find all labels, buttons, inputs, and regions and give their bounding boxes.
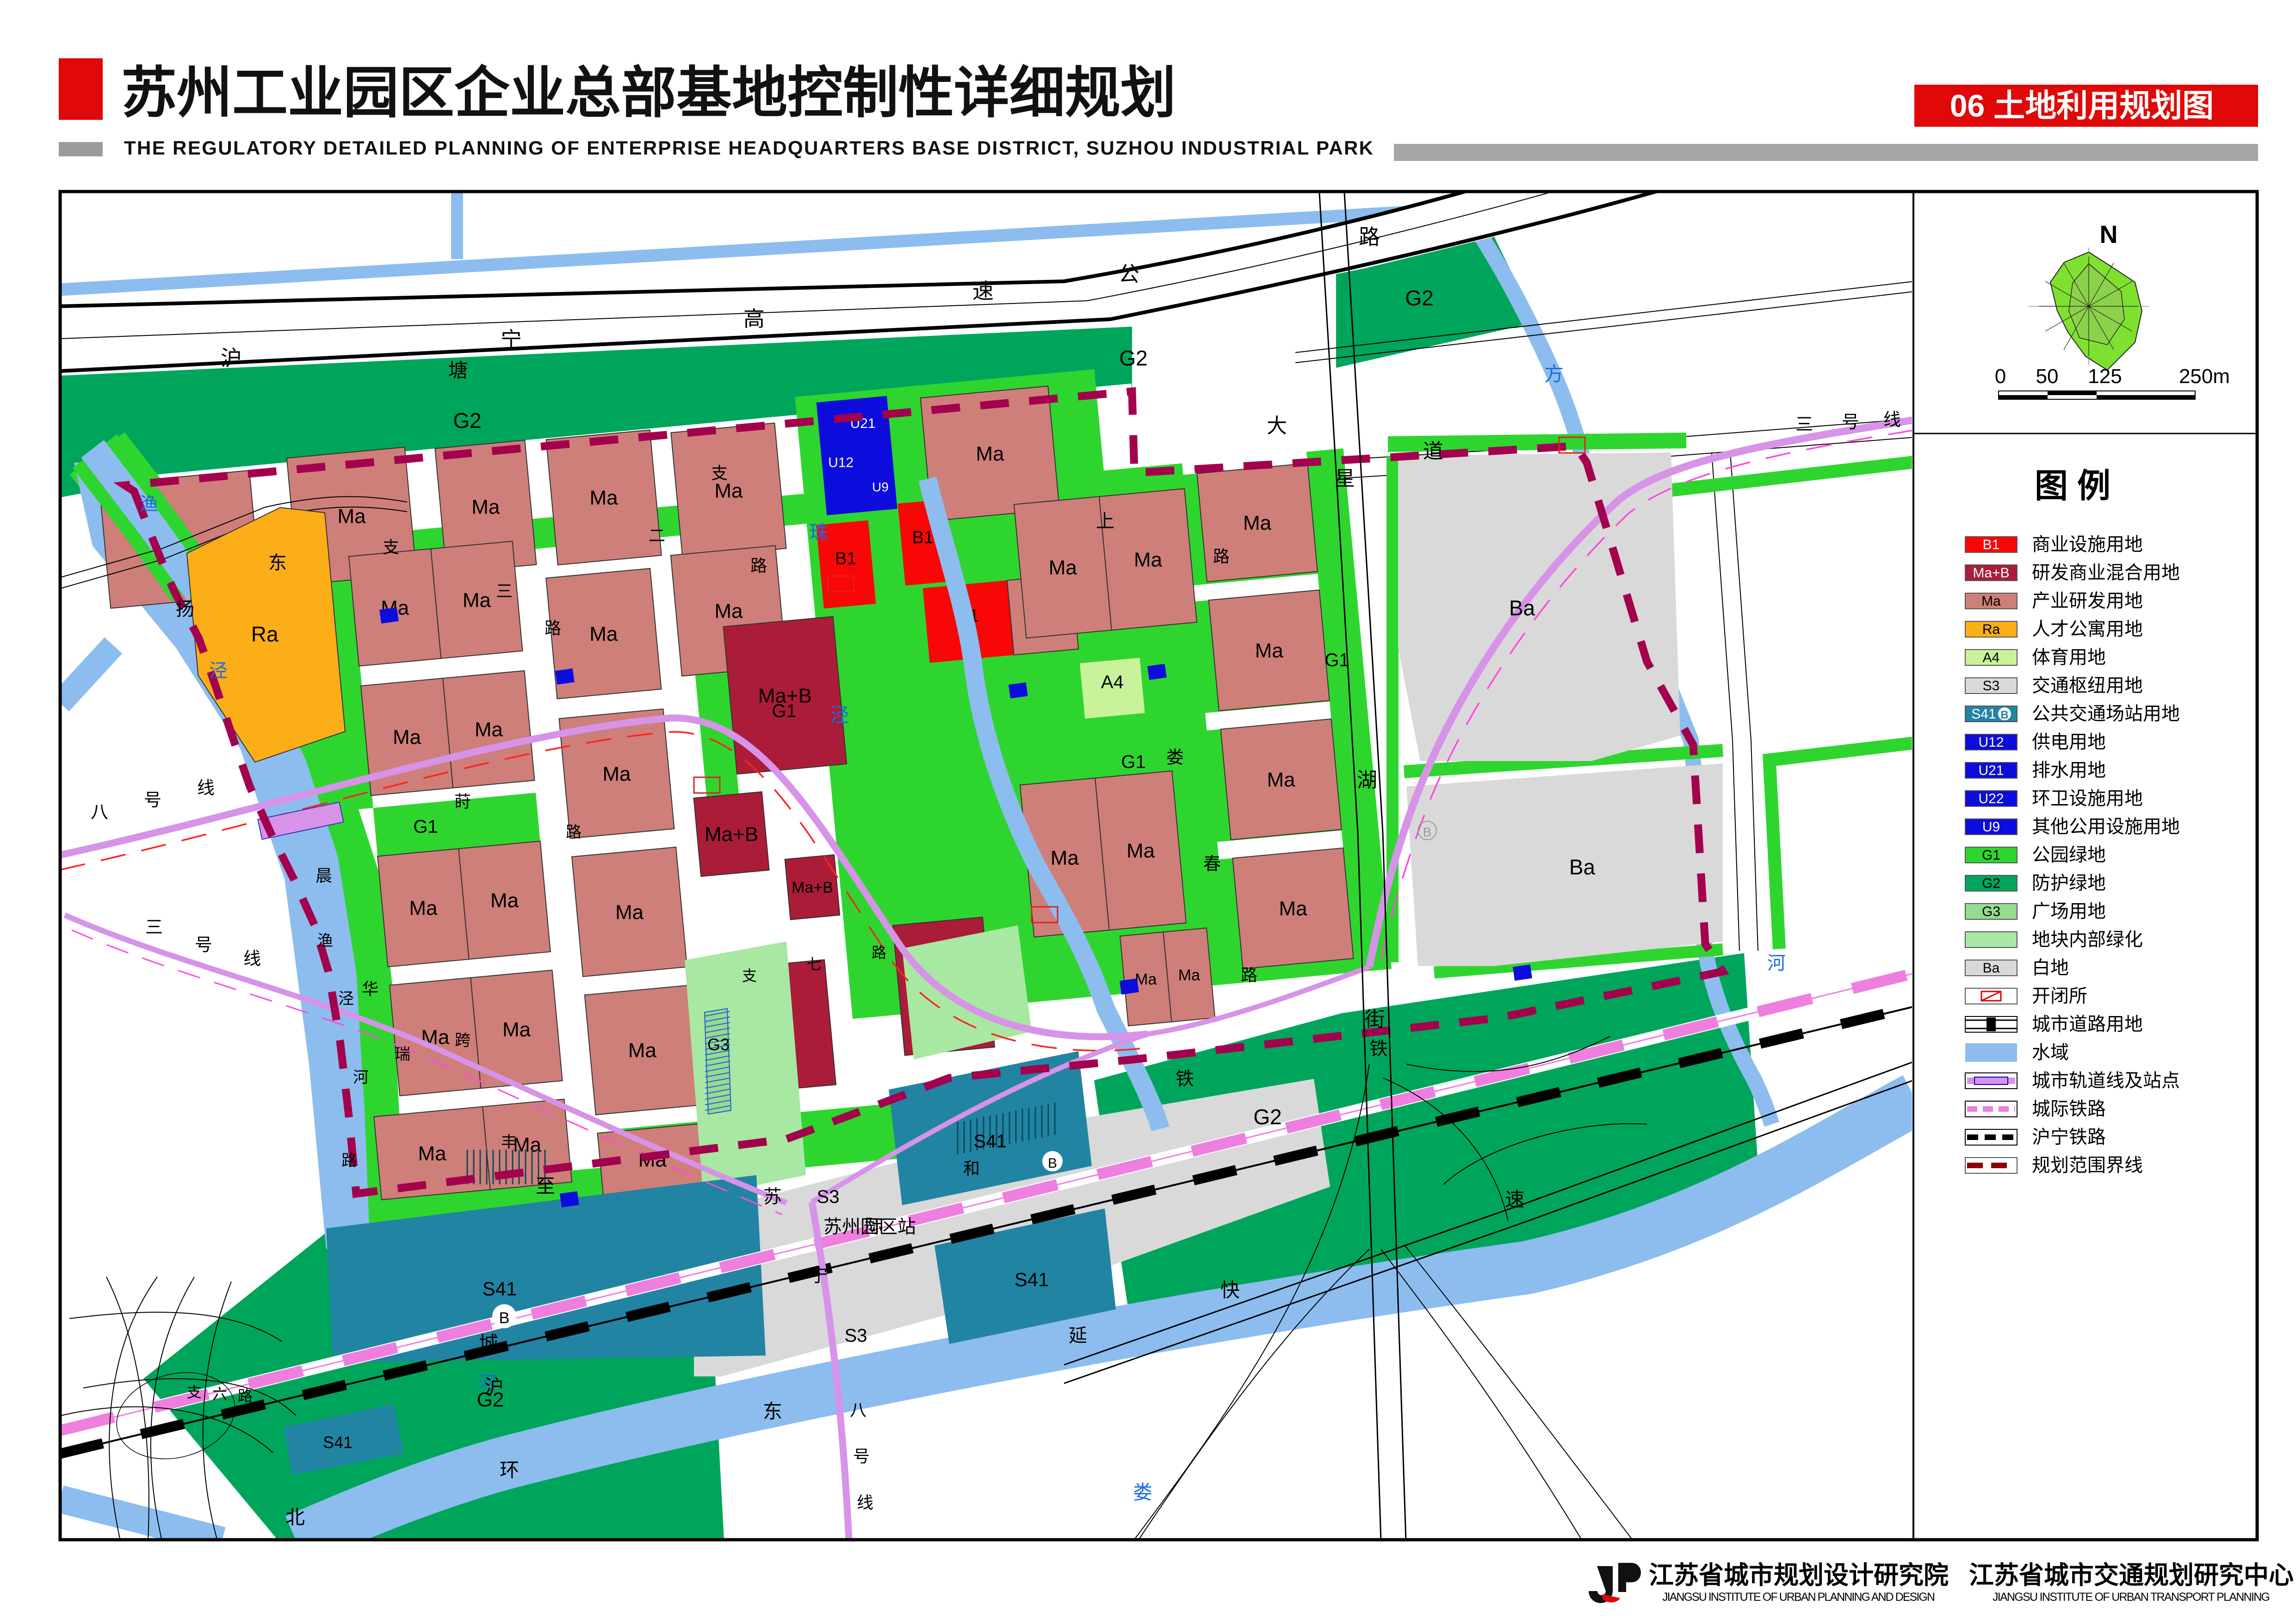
svg-text:G3: G3 — [1982, 904, 2000, 919]
svg-text:交通枢纽用地: 交通枢纽用地 — [2032, 675, 2143, 696]
svg-text:七: 七 — [807, 956, 822, 973]
svg-text:渔: 渔 — [317, 932, 333, 950]
svg-text:线: 线 — [1883, 410, 1901, 430]
svg-text:华: 华 — [362, 979, 378, 998]
svg-text:三: 三 — [145, 918, 163, 937]
svg-text:速: 速 — [1505, 1189, 1524, 1210]
svg-text:S3: S3 — [845, 1326, 867, 1346]
svg-text:湖: 湖 — [1357, 769, 1377, 792]
svg-text:莳: 莳 — [454, 792, 471, 811]
svg-text:水域: 水域 — [2032, 1042, 2069, 1063]
svg-text:瑞: 瑞 — [395, 1046, 410, 1063]
svg-text:东: 东 — [763, 1400, 782, 1422]
svg-text:G2: G2 — [1982, 876, 2000, 891]
svg-text:A4: A4 — [1983, 650, 2000, 665]
svg-text:渔: 渔 — [140, 494, 158, 514]
svg-text:Ma: Ma — [1134, 549, 1163, 571]
svg-text:号: 号 — [853, 1447, 870, 1466]
svg-text:路: 路 — [1359, 225, 1380, 249]
svg-text:Ba: Ba — [1569, 855, 1596, 879]
svg-text:Ma+B: Ma+B — [1973, 565, 2009, 581]
svg-text:河: 河 — [353, 1069, 369, 1086]
svg-text:Ma: Ma — [1255, 639, 1284, 662]
svg-text:街: 街 — [1365, 1008, 1385, 1031]
svg-text:125: 125 — [2088, 365, 2122, 388]
svg-text:娄: 娄 — [1166, 748, 1184, 768]
svg-text:S3: S3 — [817, 1187, 840, 1207]
svg-text:B: B — [1048, 1156, 1057, 1171]
svg-text:三: 三 — [496, 582, 513, 601]
svg-text:大: 大 — [1267, 415, 1287, 437]
svg-text:公: 公 — [1118, 262, 1139, 286]
svg-text:U21: U21 — [1978, 763, 2004, 778]
svg-text:铁: 铁 — [1369, 1039, 1388, 1059]
svg-text:S41: S41 — [323, 1433, 353, 1452]
svg-text:B: B — [499, 1309, 510, 1327]
svg-text:Ma+B: Ma+B — [792, 879, 833, 897]
svg-text:线: 线 — [243, 949, 261, 969]
svg-text:二: 二 — [649, 526, 665, 545]
svg-text:广场用地: 广场用地 — [2032, 901, 2106, 922]
svg-text:G3: G3 — [707, 1035, 730, 1054]
svg-text:江苏省城市交通规划研究中心: 江苏省城市交通规划研究中心 — [1969, 1561, 2294, 1589]
svg-text:Ma: Ma — [337, 505, 366, 528]
svg-text:环卫设施用地: 环卫设施用地 — [2032, 788, 2143, 809]
svg-text:Ma: Ma — [1049, 557, 1077, 579]
svg-text:快: 快 — [1220, 1279, 1240, 1301]
svg-text:A4: A4 — [1101, 672, 1124, 692]
svg-text:Ma: Ma — [463, 589, 491, 612]
svg-text:G2: G2 — [1405, 286, 1433, 310]
svg-text:人才公寓用地: 人才公寓用地 — [2032, 619, 2143, 639]
svg-text:供电用地: 供电用地 — [2032, 732, 2106, 752]
svg-text:三: 三 — [1795, 415, 1813, 434]
svg-text:公共交通场站用地: 公共交通场站用地 — [2032, 704, 2180, 724]
svg-text:Ma: Ma — [513, 1134, 542, 1156]
svg-text:际: 际 — [865, 1216, 883, 1237]
svg-text:娄: 娄 — [1133, 1481, 1152, 1503]
svg-text:路: 路 — [566, 824, 582, 841]
svg-text:G2: G2 — [453, 409, 481, 433]
svg-text:S41: S41 — [1971, 706, 1996, 722]
svg-text:商业设施用地: 商业设施用地 — [2032, 534, 2143, 555]
svg-text:Ma: Ma — [1135, 971, 1157, 988]
svg-text:Ma: Ma — [502, 1018, 531, 1041]
svg-text:Ma: Ma — [1243, 512, 1272, 534]
svg-text:扬: 扬 — [176, 599, 194, 619]
svg-text:Ma: Ma — [615, 901, 644, 923]
svg-text:Ma: Ma — [471, 496, 500, 518]
svg-text:苏: 苏 — [763, 1187, 782, 1207]
svg-text:晨: 晨 — [316, 866, 332, 885]
svg-text:Ma: Ma — [1981, 594, 2001, 609]
svg-text:号: 号 — [144, 791, 161, 810]
svg-text:路: 路 — [238, 1388, 253, 1404]
svg-text:沪: 沪 — [484, 1376, 504, 1398]
svg-text:Ma: Ma — [1279, 898, 1307, 920]
svg-text:道: 道 — [1423, 440, 1443, 463]
svg-text:B1: B1 — [1983, 537, 2000, 552]
svg-text:Ma: Ma — [1267, 768, 1296, 791]
svg-text:线: 线 — [197, 779, 215, 798]
svg-text:公园绿地: 公园绿地 — [2032, 845, 2106, 865]
svg-text:沪宁铁路: 沪宁铁路 — [2032, 1127, 2106, 1147]
svg-text:高: 高 — [743, 307, 765, 331]
svg-text:路: 路 — [341, 1152, 357, 1170]
svg-text:产业研发用地: 产业研发用地 — [2032, 591, 2143, 611]
svg-text:G1: G1 — [1324, 650, 1349, 670]
svg-text:规划范围界线: 规划范围界线 — [2032, 1155, 2143, 1176]
svg-text:Ma: Ma — [393, 726, 421, 749]
svg-text:G2: G2 — [1253, 1105, 1281, 1129]
svg-text:环: 环 — [500, 1459, 519, 1481]
svg-text:延: 延 — [1069, 1326, 1087, 1346]
svg-text:06 土地利用规划图: 06 土地利用规划图 — [1950, 88, 2214, 124]
svg-text:250m: 250m — [2179, 365, 2230, 388]
svg-text:泾: 泾 — [338, 990, 354, 1008]
svg-text:河: 河 — [1767, 953, 1786, 973]
svg-text:Ma: Ma — [1051, 847, 1079, 869]
svg-text:图 例: 图 例 — [2035, 468, 2110, 505]
svg-text:S3: S3 — [1983, 678, 2000, 694]
svg-text:城市轨道线及站点: 城市轨道线及站点 — [2032, 1071, 2180, 1091]
svg-text:G1: G1 — [1121, 752, 1145, 772]
svg-text:路: 路 — [1213, 547, 1230, 566]
svg-text:S41: S41 — [1015, 1269, 1049, 1290]
svg-text:号: 号 — [1842, 413, 1859, 432]
svg-text:0: 0 — [1995, 365, 2006, 388]
svg-text:春: 春 — [1203, 855, 1221, 874]
svg-text:路: 路 — [872, 944, 886, 961]
svg-text:JIANGSU INSTITUTE OF URBAN PLA: JIANGSU INSTITUTE OF URBAN PLANNING AND … — [1662, 1591, 1935, 1604]
svg-text:铁: 铁 — [1176, 1069, 1194, 1089]
svg-text:U12: U12 — [1978, 735, 2004, 750]
svg-text:Ma: Ma — [490, 889, 519, 912]
svg-text:U9: U9 — [1982, 819, 2000, 835]
svg-text:地块内部绿化: 地块内部绿化 — [2032, 929, 2143, 950]
svg-text:Ma+B: Ma+B — [705, 823, 758, 846]
svg-text:Ma: Ma — [590, 487, 619, 509]
svg-text:路: 路 — [1241, 966, 1257, 985]
svg-text:路: 路 — [545, 619, 561, 638]
svg-text:Ma: Ma — [475, 719, 503, 741]
svg-text:线: 线 — [857, 1493, 873, 1512]
svg-text:白地: 白地 — [2032, 958, 2069, 978]
svg-text:Ma: Ma — [409, 897, 438, 920]
svg-text:Ba: Ba — [1509, 596, 1535, 620]
svg-text:支: 支 — [742, 967, 757, 984]
svg-text:G1: G1 — [413, 817, 438, 837]
svg-text:开闭所: 开闭所 — [2032, 986, 2087, 1006]
svg-text:研发商业混合用地: 研发商业混合用地 — [2032, 563, 2180, 583]
svg-text:S41: S41 — [483, 1278, 517, 1300]
svg-text:八: 八 — [91, 803, 108, 822]
svg-text:六: 六 — [212, 1386, 227, 1402]
svg-text:Ma: Ma — [589, 623, 618, 645]
svg-text:G1: G1 — [1982, 848, 2000, 863]
svg-text:Ma: Ma — [1126, 840, 1155, 862]
svg-text:Ra: Ra — [251, 622, 278, 646]
svg-text:方: 方 — [1544, 363, 1564, 385]
svg-text:宁: 宁 — [810, 1265, 828, 1286]
svg-text:防护绿地: 防护绿地 — [2032, 873, 2106, 893]
svg-text:Ma: Ma — [714, 600, 743, 623]
svg-text:排水用地: 排水用地 — [2032, 760, 2106, 781]
svg-text:东: 东 — [268, 553, 287, 573]
svg-text:Ma: Ma — [628, 1039, 657, 1062]
svg-text:Ra: Ra — [1982, 622, 2000, 637]
svg-text:G1: G1 — [772, 701, 796, 721]
svg-text:支: 支 — [187, 1384, 202, 1400]
svg-text:至: 至 — [536, 1175, 555, 1197]
svg-text:Ma: Ma — [976, 443, 1004, 465]
svg-text:上: 上 — [1096, 511, 1114, 532]
svg-text:U12: U12 — [828, 455, 854, 471]
svg-text:星: 星 — [1335, 467, 1355, 490]
svg-text:沪: 沪 — [221, 346, 242, 370]
svg-text:U9: U9 — [872, 480, 889, 494]
svg-text:U22: U22 — [1978, 791, 2004, 806]
svg-text:支: 支 — [711, 464, 728, 483]
svg-text:城际铁路: 城际铁路 — [2032, 1099, 2106, 1119]
svg-text:Ma: Ma — [714, 480, 743, 502]
svg-text:Ma: Ma — [1178, 966, 1200, 984]
svg-text:N: N — [2100, 221, 2118, 248]
svg-text:路: 路 — [750, 556, 767, 575]
svg-text:B: B — [1423, 825, 1432, 839]
svg-text:八: 八 — [850, 1400, 866, 1419]
svg-text:JIANGSU INSTITUTE OF URBAN TRA: JIANGSU INSTITUTE OF URBAN TRANSPORT PLA… — [1993, 1591, 2270, 1604]
svg-text:Ma: Ma — [418, 1142, 446, 1165]
svg-text:Ma: Ma — [602, 763, 631, 786]
svg-text:速: 速 — [972, 279, 994, 303]
svg-text:和: 和 — [963, 1159, 980, 1178]
svg-text:城市道路用地: 城市道路用地 — [2032, 1014, 2143, 1035]
svg-text:珠: 珠 — [809, 521, 829, 543]
svg-text:50: 50 — [2036, 365, 2059, 388]
svg-text:泾: 泾 — [830, 704, 849, 726]
svg-text:宁: 宁 — [501, 328, 522, 352]
svg-text:丰: 丰 — [501, 1134, 517, 1151]
svg-text:S41: S41 — [973, 1131, 1006, 1152]
svg-text:B: B — [2000, 709, 2008, 721]
svg-text:其他公用设施用地: 其他公用设施用地 — [2032, 817, 2180, 837]
svg-text:号: 号 — [195, 935, 212, 955]
svg-text:Ba: Ba — [1983, 960, 2000, 976]
svg-text:跨: 跨 — [455, 1032, 470, 1049]
svg-text:江苏省城市规划设计研究院: 江苏省城市规划设计研究院 — [1649, 1561, 1949, 1589]
svg-text:苏州工业园区企业总部基地控制性详细规划: 苏州工业园区企业总部基地控制性详细规划 — [121, 62, 1176, 124]
svg-text:北: 北 — [285, 1506, 305, 1528]
svg-text:G2: G2 — [1119, 346, 1147, 370]
svg-text:城: 城 — [479, 1332, 498, 1354]
svg-text:体育用地: 体育用地 — [2032, 647, 2106, 668]
svg-text:支: 支 — [383, 538, 399, 557]
svg-text:B1: B1 — [835, 549, 856, 569]
svg-text:泾: 泾 — [209, 661, 228, 681]
svg-text:塘: 塘 — [448, 359, 468, 381]
svg-text:THE REGULATORY DETAILED PLANNI: THE REGULATORY DETAILED PLANNING OF ENTE… — [124, 137, 1373, 159]
svg-text:B1: B1 — [912, 528, 933, 547]
